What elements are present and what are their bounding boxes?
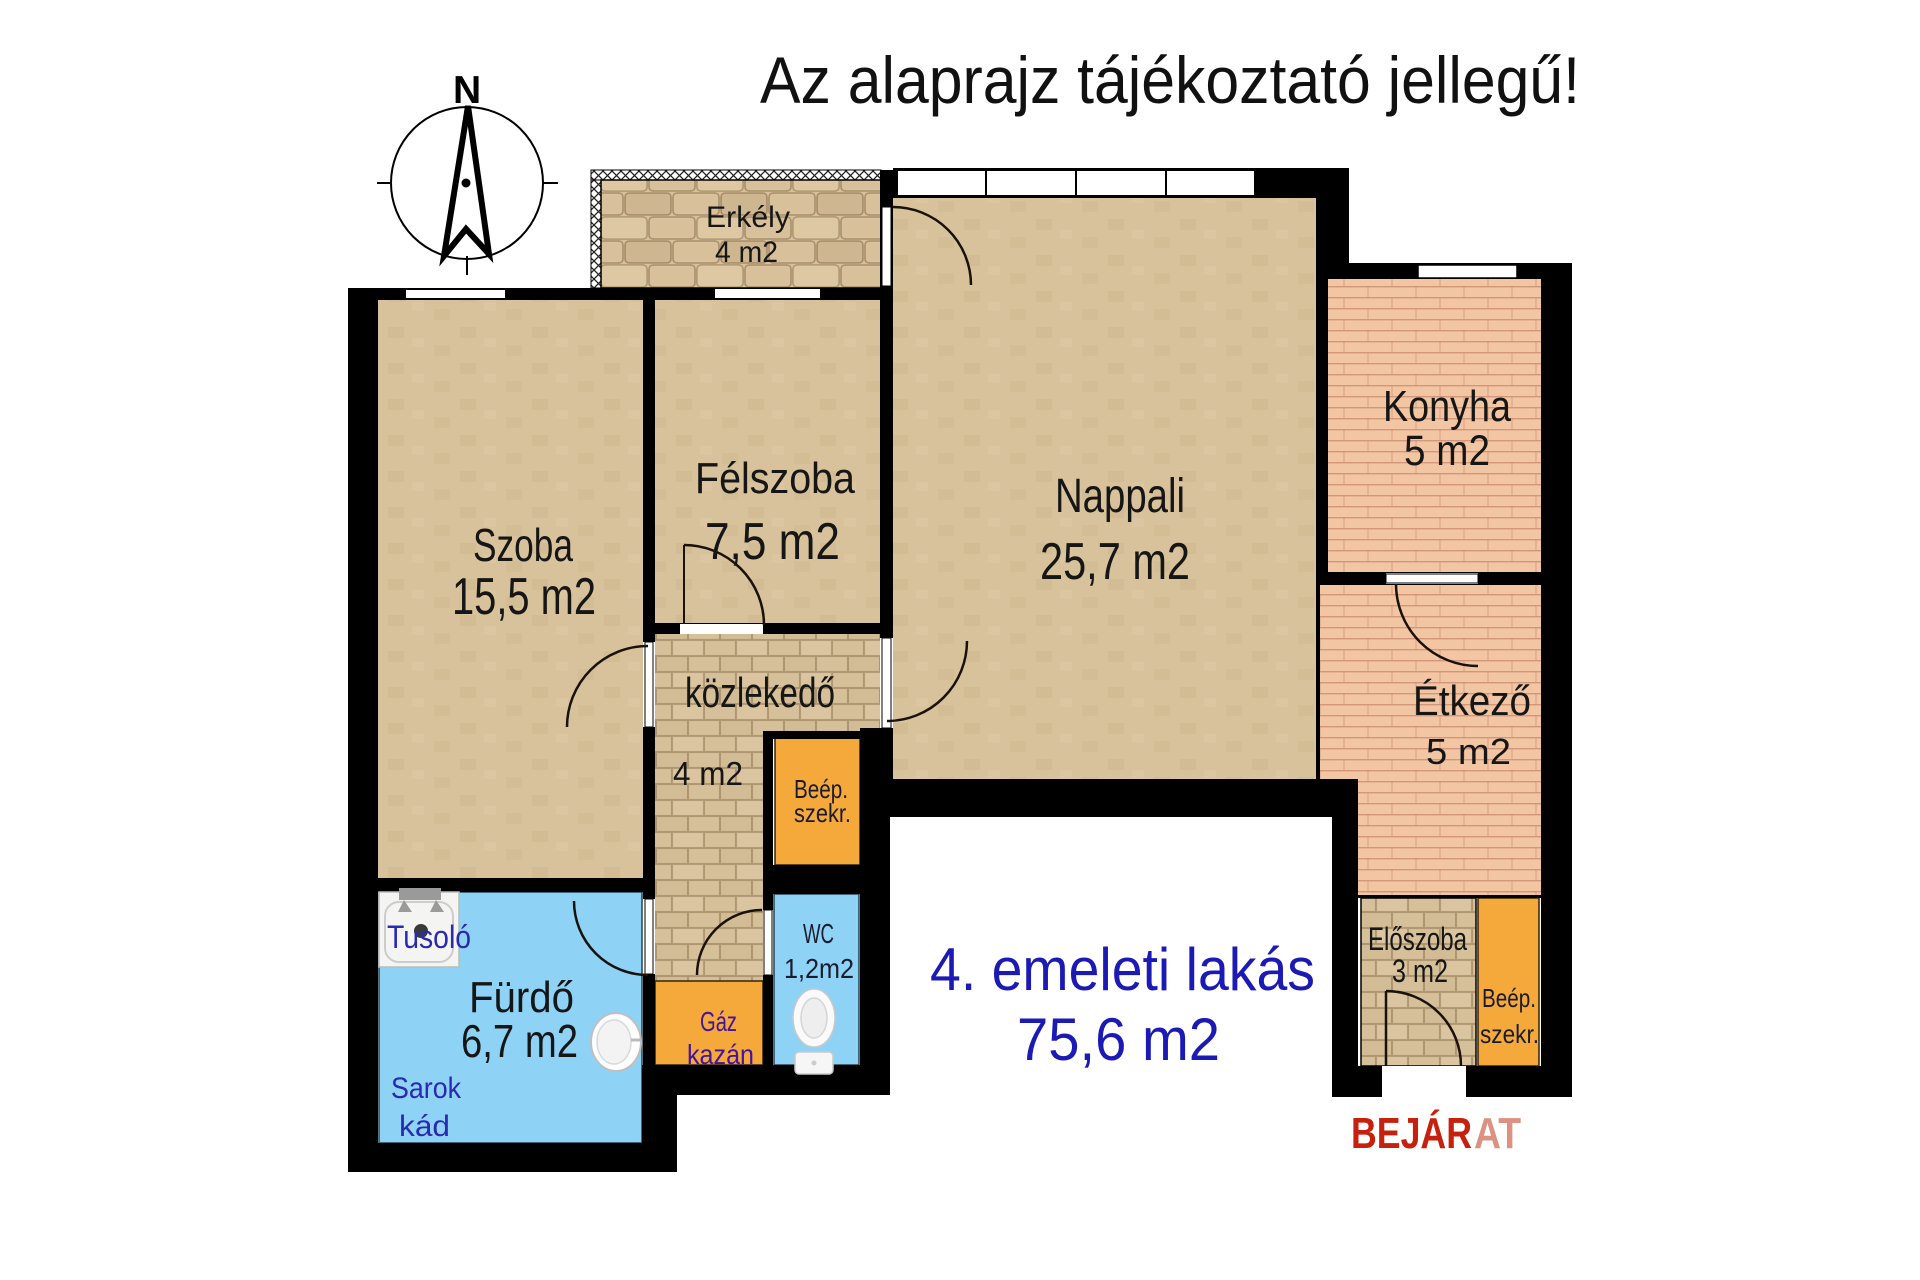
svg-text:kád: kád [399,1110,450,1143]
svg-text:szekr.: szekr. [794,798,851,828]
svg-text:Étkező: Étkező [1413,677,1531,724]
svg-text:Konyha: Konyha [1383,382,1511,431]
svg-text:Sarok: Sarok [391,1072,462,1105]
svg-text:WC: WC [803,918,834,949]
svg-text:7,5 m2: 7,5 m2 [705,513,840,571]
svg-text:közlekedő: közlekedő [685,669,835,716]
svg-text:3 m2: 3 m2 [1392,953,1448,989]
svg-text:szekr.: szekr. [1480,1019,1539,1049]
svg-text:Az alaprajz tájékoztató jelleg: Az alaprajz tájékoztató jellegű! [760,43,1580,117]
svg-text:4 m2: 4 m2 [715,236,778,269]
svg-text:Gáz: Gáz [700,1006,737,1037]
svg-text:Nappali: Nappali [1055,470,1185,523]
svg-text:75,6 m2: 75,6 m2 [1017,1006,1220,1073]
svg-text:Beép.: Beép. [1482,983,1536,1013]
svg-text:AT: AT [1474,1109,1521,1158]
svg-text:15,5 m2: 15,5 m2 [452,568,596,626]
svg-text:N: N [453,69,481,112]
svg-text:Előszoba: Előszoba [1368,921,1467,957]
svg-text:BEJÁR: BEJÁR [1351,1108,1472,1158]
svg-text:1,2m2: 1,2m2 [784,953,854,984]
svg-text:kazán: kazán [687,1039,754,1070]
svg-text:6,7 m2: 6,7 m2 [461,1015,578,1067]
svg-text:5 m2: 5 m2 [1404,427,1490,475]
svg-text:4. emeleti lakás: 4. emeleti lakás [930,936,1315,1003]
svg-text:Tusoló: Tusoló [387,919,471,955]
svg-text:5 m2: 5 m2 [1426,731,1511,772]
svg-text:Szoba: Szoba [473,519,573,571]
svg-text:Félszoba: Félszoba [695,454,855,503]
svg-text:4 m2: 4 m2 [673,755,743,792]
svg-text:25,7 m2: 25,7 m2 [1040,533,1190,591]
svg-text:Erkély: Erkély [706,201,790,234]
